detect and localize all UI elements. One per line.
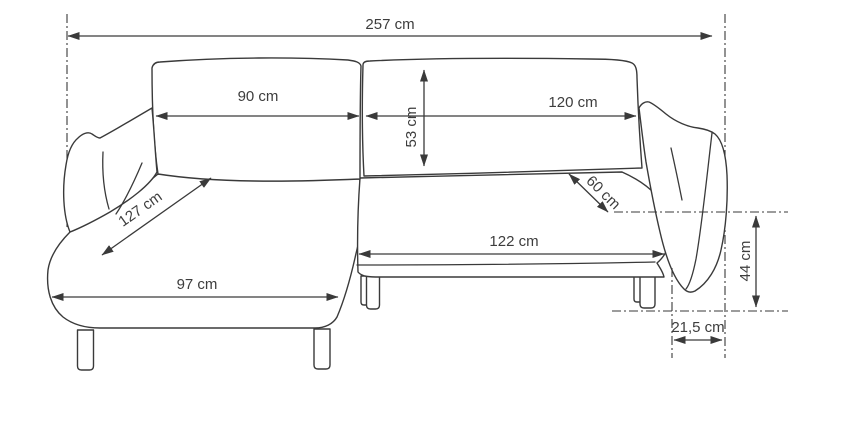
chaise-right-leg	[314, 329, 330, 369]
dim-chaise-front-width-label: 97 cm	[177, 276, 218, 293]
sofa-drawing	[48, 58, 728, 370]
seat-front-leg-right	[640, 275, 655, 308]
right-seat-body	[358, 172, 671, 277]
dim-armrest-depth: 21,5 cm	[671, 319, 724, 340]
sofa-dimension-figure: 257 cm 90 cm 120 cm 53 cm 127 cm 60 cm	[0, 0, 859, 423]
diagram-canvas: 257 cm 90 cm 120 cm 53 cm 127 cm 60 cm	[0, 0, 859, 423]
dim-total-width: 257 cm	[68, 16, 712, 36]
seat-front-leg-left	[367, 276, 380, 309]
dim-right-backrest-width-label: 120 cm	[548, 94, 597, 111]
back-cushion-left	[152, 58, 361, 181]
dim-armrest-height: 44 cm	[737, 216, 756, 307]
dim-right-seat-width-label: 122 cm	[489, 233, 538, 250]
dim-total-width-label: 257 cm	[365, 16, 414, 33]
chaise-left-leg	[78, 330, 94, 370]
dim-left-backrest-width-label: 90 cm	[238, 88, 279, 105]
dim-armrest-height-label: 44 cm	[737, 241, 754, 282]
dim-backrest-height-label: 53 cm	[403, 107, 420, 148]
dim-armrest-depth-label: 21,5 cm	[671, 319, 724, 336]
